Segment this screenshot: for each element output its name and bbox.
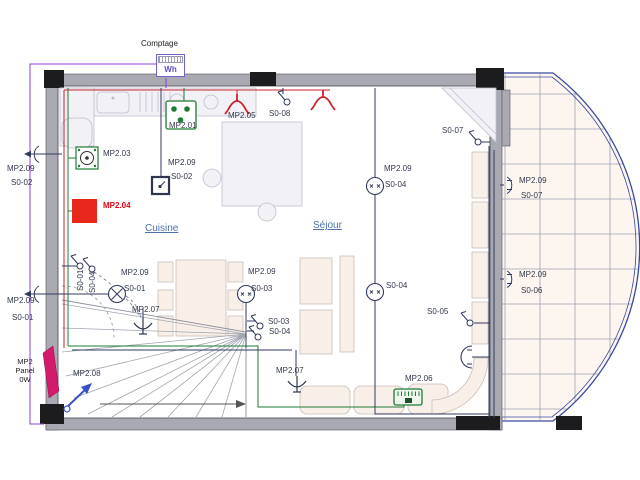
panel-label-line2: Panel — [8, 366, 42, 375]
stair-lamp-icon[interactable] — [64, 383, 92, 412]
wall-lamp-inner-icon[interactable] — [461, 346, 472, 368]
terminal-icon[interactable] — [394, 389, 422, 405]
device-label: S0-03 — [251, 284, 272, 293]
device-label: S0-01 — [12, 313, 33, 322]
device-label: S0-05 — [427, 307, 448, 316]
switch-icon[interactable] — [461, 312, 473, 327]
device-label: S0-06 — [521, 286, 542, 295]
red-square-icon[interactable] — [72, 199, 97, 223]
device-label: S0-07 — [442, 126, 463, 135]
device-label: S0-03 — [268, 317, 289, 326]
panel-label: MP2 Panel 0W — [8, 357, 42, 384]
meter-unit: Wh — [157, 63, 184, 76]
floor-plan: Comptage Wh Cuisine Séjour MP2 Panel 0W … — [0, 0, 640, 480]
device-label: MP2.09 — [168, 158, 196, 167]
device-label: MP2.09 — [519, 176, 547, 185]
device-label: MP2.08 — [73, 369, 101, 378]
device-label: MP2.04 — [103, 201, 131, 210]
device-label: S0-04 — [386, 281, 407, 290]
device-label: MP2.07 — [276, 366, 304, 375]
switch-icon[interactable] — [469, 131, 481, 146]
device-label: S0-07 — [521, 191, 542, 200]
device-label: S0-04 — [88, 272, 97, 293]
device-label: S0-02 — [11, 178, 32, 187]
room-label-kitchen: Cuisine — [145, 223, 178, 234]
device-label: MP2.07 — [132, 305, 160, 314]
device-label: MP2.09 — [121, 268, 149, 277]
device-label: MP2.05 — [228, 111, 256, 120]
device-label: MP2.03 — [103, 149, 131, 158]
lamp-circle-icon[interactable] — [367, 284, 384, 301]
walls — [40, 68, 582, 430]
y-lamp-icon[interactable] — [134, 318, 152, 334]
lamp-x-icon[interactable] — [109, 286, 126, 303]
device-label: S0-04 — [269, 327, 290, 336]
switch-icon[interactable] — [251, 315, 263, 330]
hob-socket-icon[interactable] — [76, 147, 98, 169]
device-label: MP2.09 — [248, 267, 276, 276]
floor-plan-drawing — [0, 0, 640, 480]
energy-meter[interactable]: Wh — [156, 54, 185, 77]
switch-icon[interactable] — [278, 91, 290, 106]
switch-box-icon[interactable] — [152, 177, 169, 194]
wiring — [30, 64, 504, 424]
lamp-red-icon[interactable] — [311, 90, 335, 110]
switch-icon[interactable] — [71, 255, 83, 270]
device-label: MP2.09 — [7, 296, 35, 305]
device-label: S0-04 — [385, 180, 406, 189]
device-label: S0-08 — [269, 109, 290, 118]
device-label: S0-02 — [171, 172, 192, 181]
device-label: MP2.09 — [519, 270, 547, 279]
panel-label-line1: MP2 — [8, 357, 42, 366]
panel-label-line3: 0W — [8, 375, 42, 384]
device-label: MP2.06 — [405, 374, 433, 383]
device-label: S0-01 — [124, 284, 145, 293]
room-label-living: Séjour — [313, 220, 342, 231]
device-label: MP2.09 — [384, 164, 412, 173]
device-label: MP2.09 — [7, 164, 35, 173]
terrace — [500, 73, 640, 421]
device-label: S0-01 — [76, 270, 85, 291]
meter-title: Comptage — [141, 39, 178, 48]
lamp-circle-icon[interactable] — [367, 178, 384, 195]
meter-display — [158, 56, 183, 63]
device-label: MP2.01 — [169, 121, 197, 130]
